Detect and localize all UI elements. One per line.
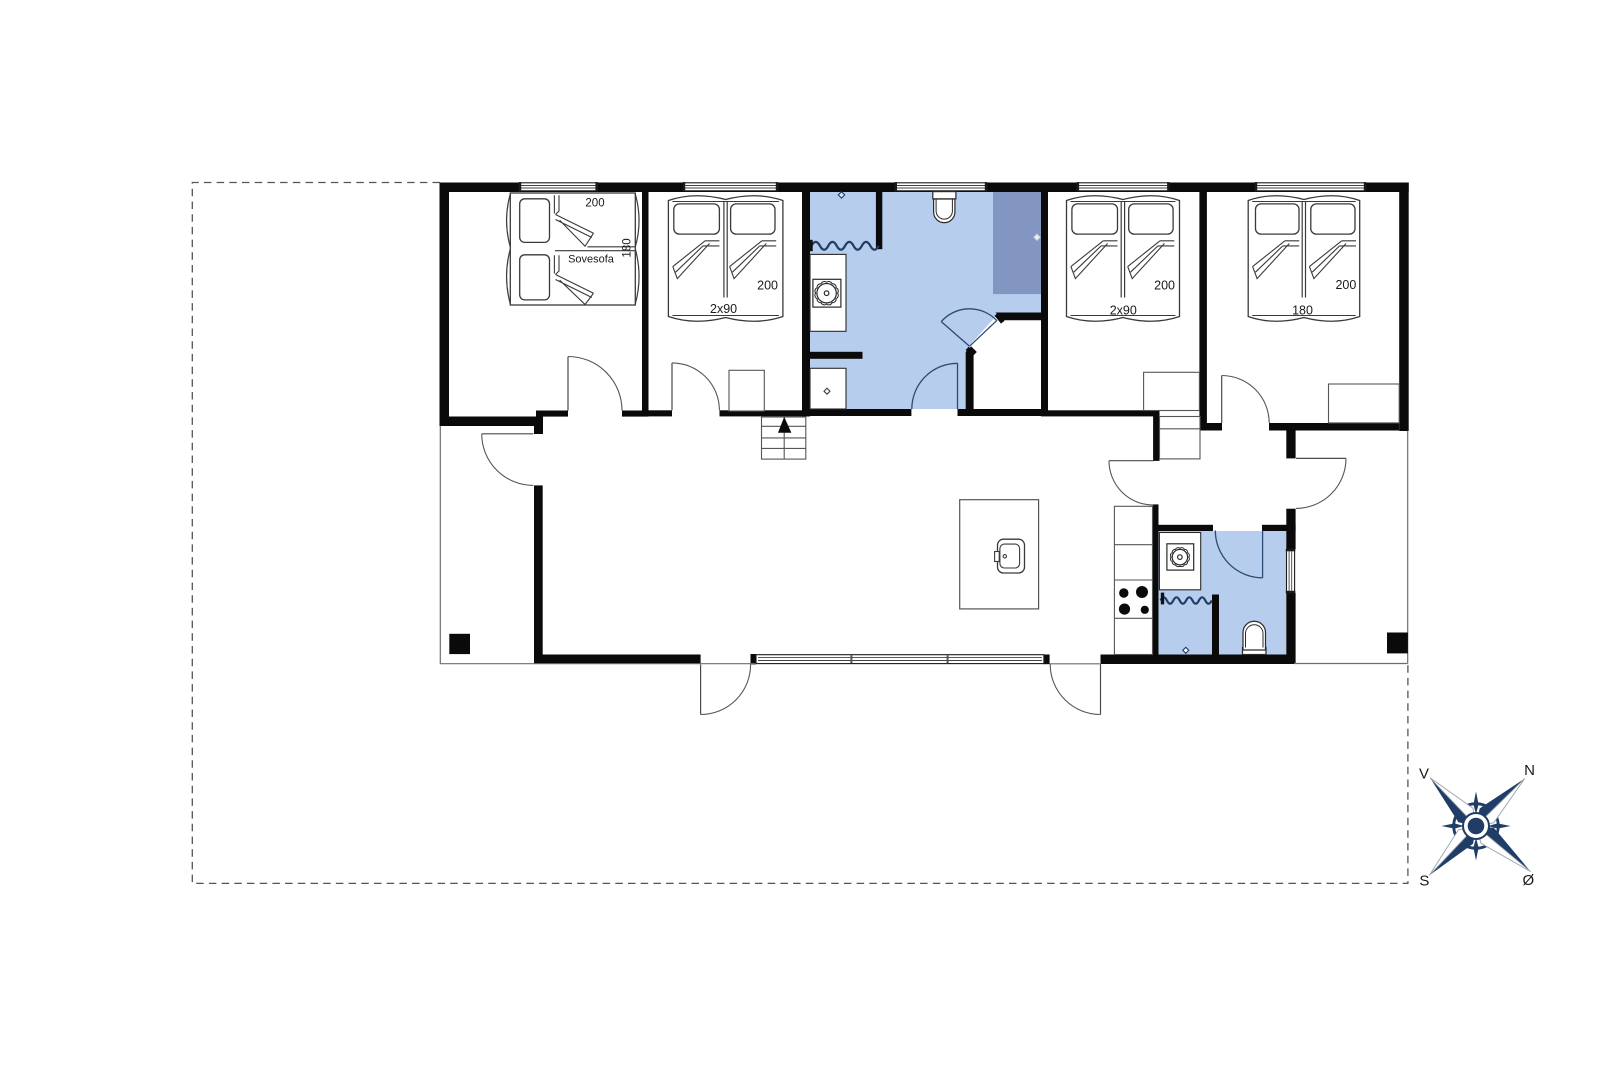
svg-text:180: 180 xyxy=(1292,304,1313,318)
svg-text:N: N xyxy=(1524,762,1535,779)
svg-text:2x90: 2x90 xyxy=(1110,304,1137,318)
svg-text:200: 200 xyxy=(585,198,604,210)
svg-text:Sovesofa: Sovesofa xyxy=(568,253,615,265)
svg-text:200: 200 xyxy=(757,278,778,292)
svg-text:200: 200 xyxy=(1335,278,1356,292)
svg-text:2x90: 2x90 xyxy=(710,302,737,316)
svg-text:Ø: Ø xyxy=(1522,872,1534,889)
svg-text:180: 180 xyxy=(621,238,633,257)
svg-text:V: V xyxy=(1419,766,1429,783)
svg-text:200: 200 xyxy=(1154,278,1175,292)
svg-text:S: S xyxy=(1419,873,1429,890)
